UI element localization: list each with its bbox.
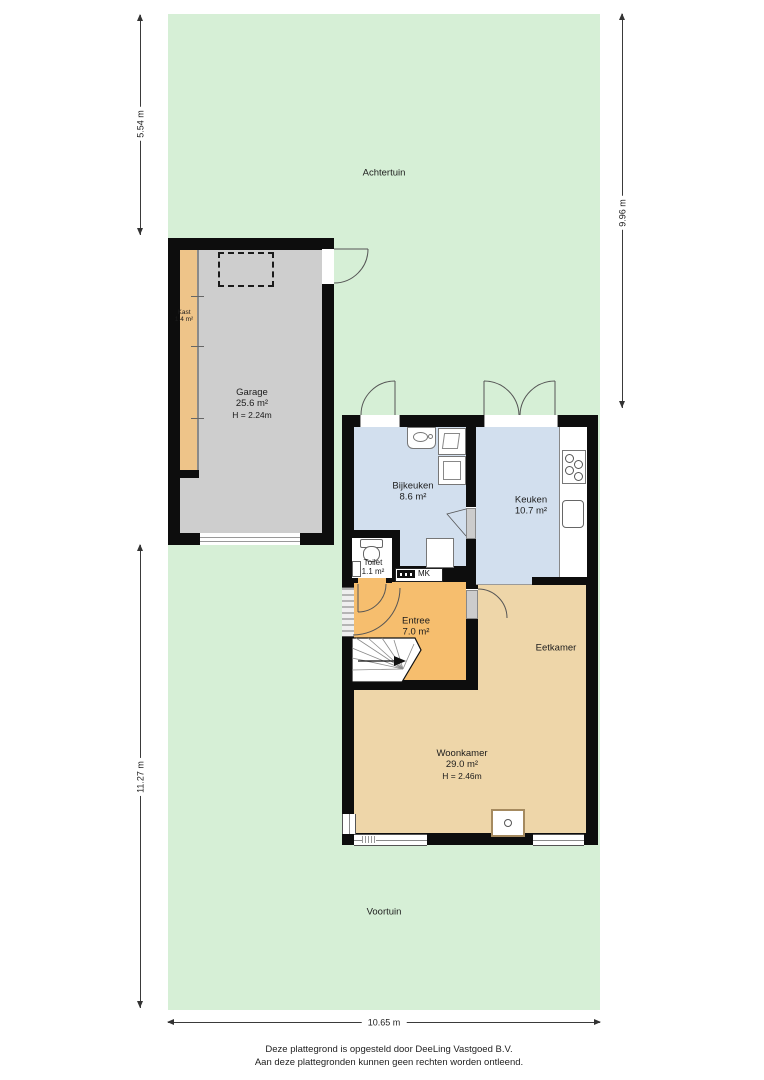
kitchen-passage <box>476 577 532 585</box>
window-vent <box>362 836 376 843</box>
dim-label: 9.96 m <box>617 196 630 230</box>
window <box>533 834 584 846</box>
front-door <box>342 587 354 637</box>
utility-kitchen-door-leaf <box>466 508 476 539</box>
burner-icon <box>565 466 574 475</box>
sink-tap <box>428 434 433 439</box>
appliance-detail <box>443 461 461 480</box>
arrowhead <box>137 228 143 235</box>
arrowhead <box>137 544 143 551</box>
kitchen-double-door-opening <box>484 415 558 427</box>
arrowhead <box>137 14 143 21</box>
utility-sink-icon <box>407 427 436 449</box>
utility-garden-door-opening <box>360 415 400 427</box>
closet-label: Kast 1.4 m² <box>175 309 193 323</box>
hall-dining-door-leaf <box>466 590 478 619</box>
floorplan-page: Achtertuin Voortuin Garage 25.6 m² H = 2… <box>0 0 764 1080</box>
fireplace-icon <box>491 809 525 837</box>
garage-label: Garage 25.6 m² H = 2.24m <box>232 387 271 421</box>
laundry-appliance-icon <box>438 428 466 455</box>
closet-end-wall <box>180 470 199 478</box>
footer-disclaimer: Deze plattegrond is opgesteld door DeeLi… <box>14 1044 764 1070</box>
freezer-icon <box>426 538 454 568</box>
arrowhead <box>167 1019 174 1025</box>
footer-line-2: Aan deze plattegronden kunnen geen recht… <box>14 1057 764 1070</box>
appliance-detail <box>442 433 460 449</box>
meter-dot <box>400 573 402 576</box>
closet-divider <box>197 250 199 470</box>
garage-main-door <box>200 533 300 545</box>
arrowhead <box>137 1001 143 1008</box>
dim-label: 10.65 m <box>362 1018 407 1029</box>
footer-line-1: Deze plattegrond is opgesteld door DeeLi… <box>14 1044 764 1057</box>
meter-dot <box>410 573 412 576</box>
burner-icon <box>565 454 574 463</box>
meter-closet-box: MK <box>395 568 443 582</box>
utility-room-label: Bijkeuken 8.6 m² <box>392 481 433 504</box>
garage-main-door-line <box>200 537 300 542</box>
burner-icon <box>574 460 583 469</box>
dim-label: 11.27 m <box>135 758 148 796</box>
washer-icon <box>438 456 466 485</box>
toilet-handbasin-icon <box>352 561 361 577</box>
kitchen-label: Keuken 10.7 m² <box>515 495 547 518</box>
burner-icon <box>574 472 583 481</box>
arrowhead <box>619 401 625 408</box>
garage-hatch-dashed-box <box>218 252 274 287</box>
front-garden-label: Voortuin <box>367 906 402 917</box>
dining-room-floor <box>478 585 586 690</box>
dining-room-label: Eetkamer <box>536 642 577 653</box>
closet-floor <box>180 250 197 470</box>
arrowhead <box>594 1019 601 1025</box>
window <box>342 814 356 834</box>
back-garden-label: Achtertuin <box>363 167 406 178</box>
stove-icon <box>562 450 586 484</box>
toilet-door-opening <box>358 578 386 583</box>
toilet-label: Toilet 1.1 m² <box>362 558 385 576</box>
closet-shelf-tick <box>191 346 204 347</box>
garage-side-door-opening <box>322 249 334 284</box>
hall-label: Entree 7.0 m² <box>402 616 430 639</box>
closet-shelf-tick <box>191 418 204 419</box>
closet-shelf-tick <box>191 296 204 297</box>
living-room-label: Woonkamer 29.0 m² H = 2.46m <box>436 748 487 782</box>
flue-circle <box>504 819 512 827</box>
arrowhead <box>619 13 625 20</box>
sink-basin <box>413 432 428 442</box>
dim-label: 5.54 m <box>135 107 148 141</box>
kitchen-sink-icon <box>562 500 584 528</box>
meter-closet-label: MK <box>418 569 430 578</box>
meter-icon <box>397 570 415 578</box>
meter-dot <box>405 573 407 576</box>
